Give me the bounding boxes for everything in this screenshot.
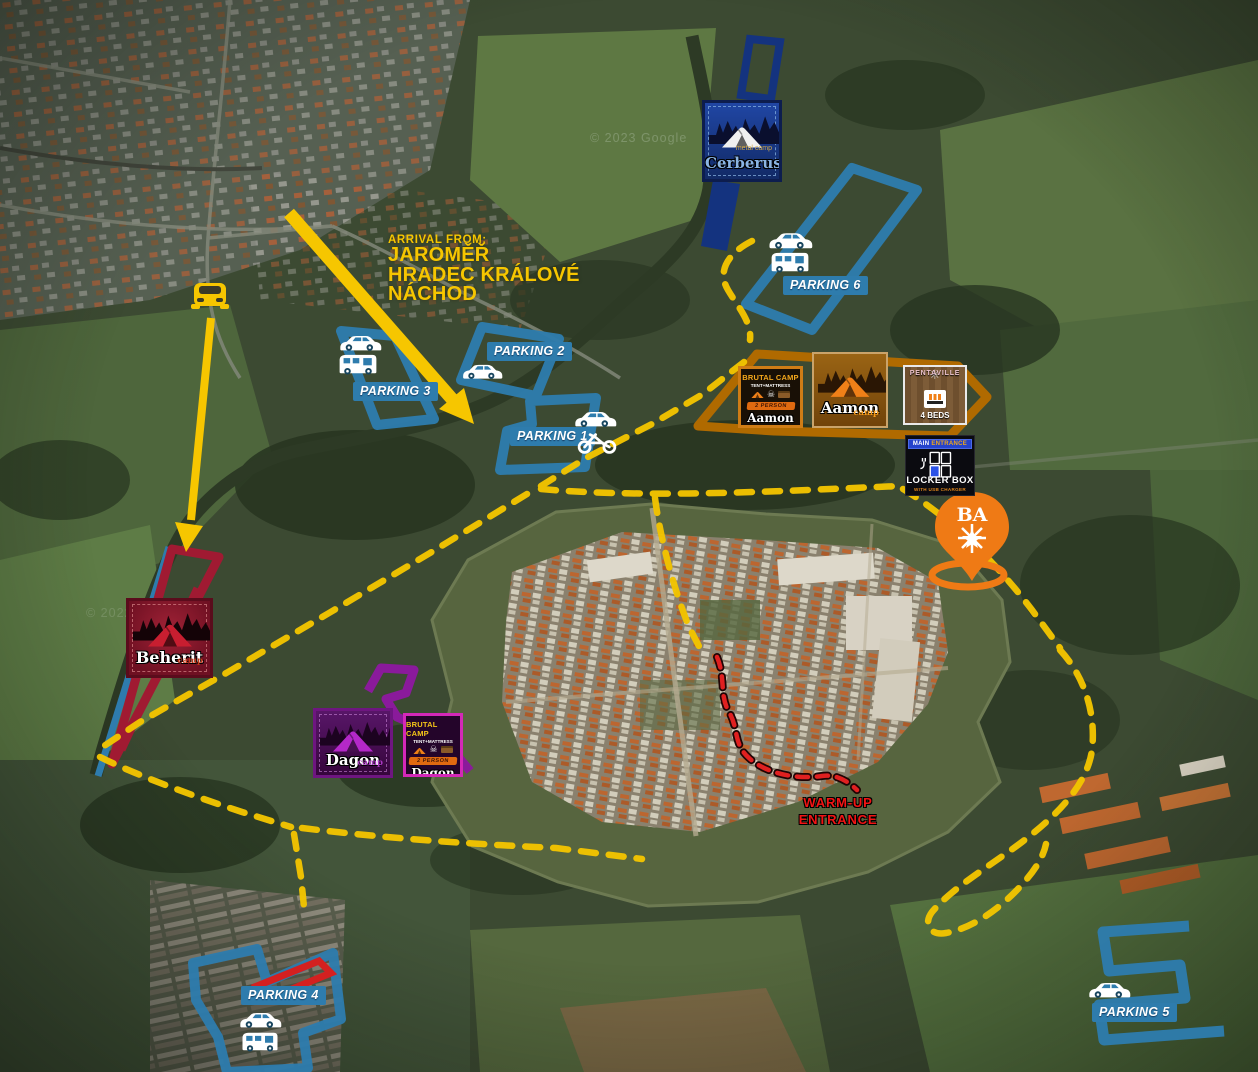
mattress-icon <box>778 393 790 398</box>
beherit-sub-label: camp <box>177 656 203 666</box>
aamon-sub-label: camp <box>853 408 879 418</box>
cerberus-camp-logo: metal camp Cerberus <box>702 100 782 182</box>
tent-icon <box>332 730 375 753</box>
skull-icon: ☠ <box>767 391 775 400</box>
pentaville-cabin-logo: ✳ PENTAVILLE 4 BEDS <box>903 365 967 425</box>
parking-2-label: PARKING 2 <box>487 342 572 361</box>
locker-box-sub: WITH USB CHARGER <box>906 487 974 492</box>
dagon-brutal-name: Dagon <box>411 766 454 777</box>
warmup-entrance-label: WARM-UP ENTRANCE <box>796 794 880 828</box>
warmup-line1: WARM-UP <box>796 794 880 811</box>
dagon-sub-label: camp <box>357 758 383 768</box>
usb-plug-icon <box>920 458 925 469</box>
tent-icon <box>146 623 193 648</box>
dagon-camp-logo: Dagon camp <box>313 708 393 778</box>
pentaville-beds-label: 4 BEDS <box>905 411 965 420</box>
brutal-camp-label: BRUTAL CAMP <box>406 720 460 738</box>
tent-icon <box>751 391 764 399</box>
arrival-from-block: ARRIVAL FROM: JAROMĚŘ HRADEC KRÁLOVÉ NÁC… <box>388 234 580 305</box>
pentaville-name: PENTAVILLE <box>910 370 961 377</box>
parking-3-label: PARKING 3 <box>353 382 438 401</box>
entrance-label: ENTRANCE <box>931 441 967 447</box>
dagon-brutal-camp-logo: BRUTAL CAMP TENT+MATTRESS ☠ 2 PERSON Dag… <box>403 713 463 777</box>
map-watermark: © 2023 Google <box>590 131 687 145</box>
festival-map-canvas: BA © 2023 Google © 2022 ARRIVAL FROM: JA… <box>0 0 1258 1072</box>
parking-4-camper-icon <box>240 1030 280 1053</box>
tent-mattress-label: TENT+MATTRESS <box>413 739 453 744</box>
beherit-camp-logo: Beherit camp <box>126 598 213 678</box>
brutal-camp-label: BRUTAL CAMP <box>742 373 799 382</box>
mattress-icon <box>441 748 453 753</box>
tent-icon <box>413 747 426 755</box>
ba-letters: BA <box>957 504 988 526</box>
arrival-city-jaromer: JAROMĚŘ <box>388 246 580 266</box>
parking-1-car-icon <box>571 409 617 428</box>
parking-4-car-icon <box>236 1010 282 1029</box>
main-entrance-banner: MAIN ENTRANCE <box>908 439 972 449</box>
arrival-car-icon <box>190 278 230 310</box>
parking-6-camper-icon <box>769 250 811 274</box>
parking-2-car-icon <box>459 362 503 380</box>
parking-6-car-icon <box>765 230 813 250</box>
main-label: MAIN <box>913 441 930 447</box>
cerberus-name: Cerberus <box>705 154 779 172</box>
warmup-line2: ENTRANCE <box>796 811 880 828</box>
aamon-brutal-camp-logo: BRUTAL CAMP TENT+MATTRESS ☠ 2 PERSON Aam… <box>738 366 803 428</box>
skull-icon: ☠ <box>429 746 437 755</box>
parking-3-car-icon <box>336 333 382 352</box>
arrival-city-nachod: NÁCHOD <box>388 285 580 305</box>
person-ribbon: 2 PERSON <box>409 757 458 765</box>
locker-box-title: LOCKER BOX <box>906 475 974 486</box>
person-ribbon: 2 PERSON <box>746 402 795 410</box>
parking-5-label: PARKING 5 <box>1092 1003 1177 1022</box>
locker-box-logo: MAIN ENTRANCE LOCKER BOX WITH USB CHARGE… <box>905 435 975 496</box>
parking-3-camper-icon <box>337 352 379 376</box>
cerberus-sub-label: metal camp <box>736 145 772 152</box>
tent-mattress-label: TENT+MATTRESS <box>751 383 791 388</box>
satellite-basemap: BA <box>0 0 1258 1072</box>
parking-4-label: PARKING 4 <box>241 986 326 1005</box>
bunk-bed-icon <box>923 389 947 409</box>
parking-6-label: PARKING 6 <box>783 276 868 295</box>
parking-1-motorcycle-icon <box>575 429 619 454</box>
aamon-camp-logo: Aamon camp <box>812 352 888 428</box>
parking-5-car-icon <box>1085 980 1131 999</box>
aamon-brutal-name: Aamon <box>747 411 794 425</box>
tent-icon <box>829 376 871 398</box>
